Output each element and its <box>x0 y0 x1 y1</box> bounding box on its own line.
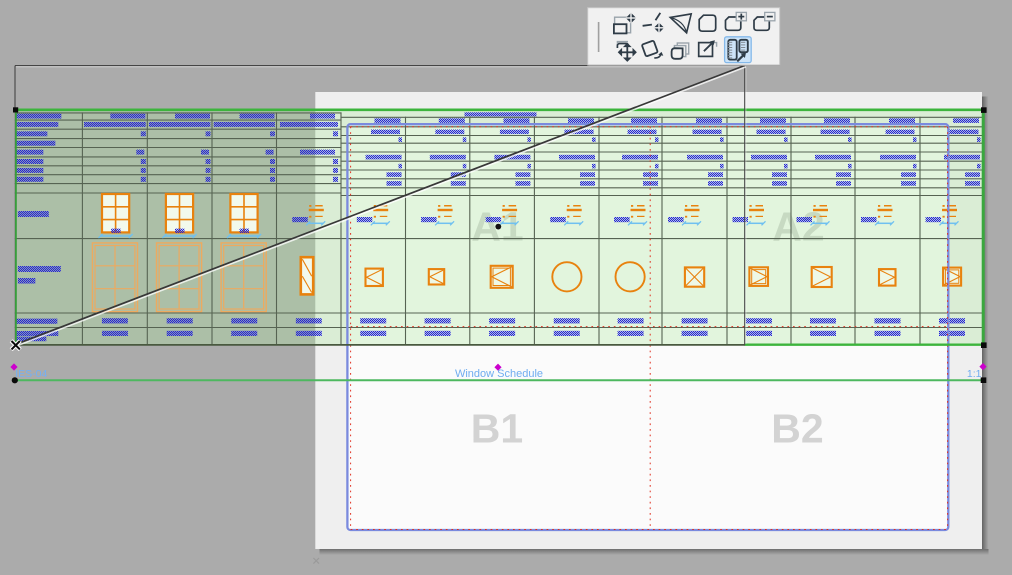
svg-text:B2: B2 <box>771 406 823 452</box>
svg-text:B1: B1 <box>471 406 523 452</box>
svg-text:1:1: 1:1 <box>967 368 982 380</box>
svg-text:IES-04: IES-04 <box>15 368 47 380</box>
svg-text:Window Schedule: Window Schedule <box>455 368 543 380</box>
